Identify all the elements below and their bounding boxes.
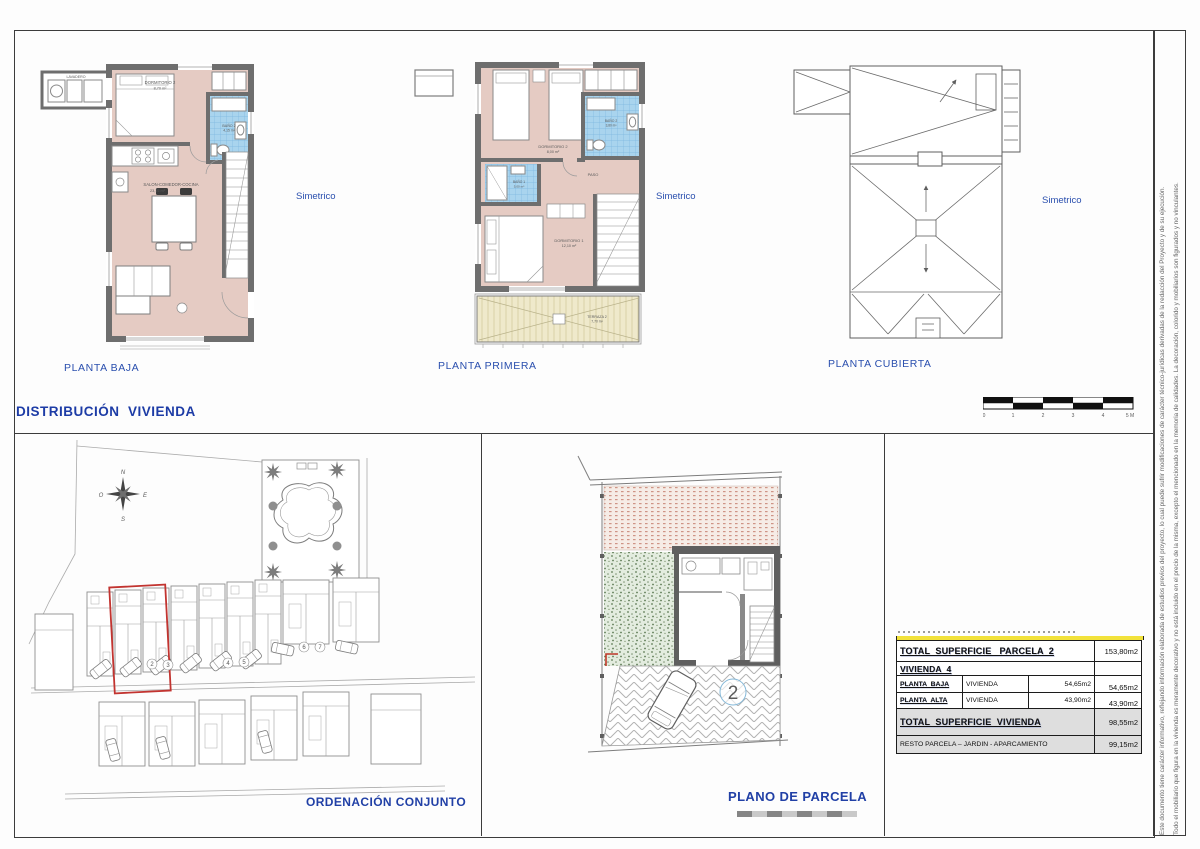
tree-icon (328, 561, 346, 579)
planta-cubierta-label: PLANTA CUBIERTA (828, 358, 932, 370)
compass-n: N (121, 470, 126, 476)
bano2-label: BAÑO 2 (222, 123, 235, 128)
bano2-label: BAÑO 2 (605, 118, 618, 123)
compass-rose: N S E O (99, 470, 148, 523)
bed-icon (549, 70, 583, 140)
table-row: TOTAL SUPERFICIE VIVIENDA 98,55m2 (897, 709, 1142, 736)
bed-icon (493, 70, 529, 140)
table-row: PLANTA BAJA VIVIENDA 54,65m2 54,65m2 (897, 676, 1142, 693)
simetrico-label-1: Simetrico (296, 191, 336, 202)
planta-baja-row-total: 54,65m2 (1095, 676, 1142, 693)
paso-label: PASO (588, 172, 599, 177)
terraza-label: TERRAZA 2 (587, 315, 607, 319)
drawing-sheet: LAVADERO BAÑO 2 4,15 m² (0, 0, 1200, 849)
annex-roof (415, 70, 453, 96)
dormitorio2-area: 8,00 m² (547, 150, 560, 154)
dormitorio2-area: 8,70 m² (154, 87, 168, 91)
compass-o: O (99, 493, 104, 499)
bed-icon (485, 216, 543, 282)
scale-tick-3: 3 (1072, 413, 1075, 419)
disclaimer-line-1: Este documento tiene carácter informativ… (1156, 31, 1170, 835)
floor-plan-planta-primera: DORMITORIO 2 8,00 m² BAÑO 2 3,80 m² (413, 56, 648, 352)
terraza: TERRAZA 2 7,70 m² (475, 294, 641, 348)
planta-alta-row-total: 43,90m2 (1095, 693, 1142, 709)
resto-parcela-label: RESTO PARCELA – JARDIN - APARCAMIENTO (897, 736, 1095, 754)
disclaimer-line-2: Todo el mobiliario que figura en la vivi… (1170, 31, 1184, 835)
planta-baja-label: PLANTA BAJA (64, 362, 139, 374)
stairs (222, 152, 248, 278)
dining-table-icon (152, 196, 196, 242)
bush-icon (333, 542, 342, 551)
table-row: PLANTA ALTA VIVIENDA 43,90m2 43,90m2 (897, 693, 1142, 709)
tree-icon (328, 461, 346, 479)
bathtub-icon (212, 98, 246, 111)
total-parcela-label: TOTAL SUPERFICIE PARCELA 2 (897, 641, 1095, 662)
bush-icon (333, 502, 342, 511)
salon-label: SALON-COMEDOR-COCINA (143, 182, 198, 187)
chair-icon (156, 243, 168, 250)
tree-icon (264, 463, 282, 481)
compass-s: S (121, 517, 125, 523)
simetrico-label-3: Simetrico (1042, 195, 1082, 206)
surface-table: TOTAL SUPERFICIE PARCELA 2 153,80m2 VIVI… (896, 640, 1142, 754)
planta-primera-label: PLANTA PRIMERA (438, 360, 537, 372)
bano2-area: 4,15 m² (223, 129, 235, 133)
sink-icon (511, 166, 525, 174)
parcel-number-circle: 2 (720, 679, 746, 705)
vivienda-label: VIVIENDA 4 (897, 662, 1095, 676)
sheet-title: DISTRIBUCIÓN VIVIENDA (16, 404, 196, 419)
scale-tick-0: 0 (983, 413, 986, 419)
wardrobe-icon (212, 72, 246, 90)
bano1-area: 5,00 m² (514, 184, 525, 188)
bano1-label: BAÑO 1 (513, 179, 525, 184)
upper-house-row (35, 578, 379, 690)
wardrobe-icon (547, 204, 585, 218)
compass-e: E (143, 493, 148, 499)
site-plan-ordenacion: N S E O 2 3 4 5 6 (15, 434, 481, 834)
parcel-plan: 2 (482, 434, 884, 834)
planta-baja-row-value: 54,65m2 (1029, 676, 1095, 693)
stairs (750, 606, 774, 662)
bush-icon (269, 542, 278, 551)
resto-parcela-value: 99,15m2 (1095, 736, 1142, 754)
total-vivienda-label: TOTAL SUPERFICIE VIVIENDA (897, 709, 1095, 736)
parcel-number: 2 (728, 683, 739, 704)
chair-icon (180, 188, 192, 195)
table-fine-print-line (898, 629, 1078, 636)
pool-garden (262, 460, 359, 582)
salon-area: 23,15 m² (150, 189, 166, 193)
scale-tick-5: 5 M (1126, 413, 1134, 419)
parcela-label: PLANO DE PARCELA (728, 789, 867, 804)
house-interior (679, 554, 774, 662)
scale-tick-4: 4 (1102, 413, 1105, 419)
lavadero-annex: LAVADERO (42, 72, 108, 108)
roof-plan-planta-cubierta (790, 60, 1040, 345)
lavadero-label: LAVADERO (66, 75, 85, 79)
terraza-area: 7,70 m² (591, 320, 603, 324)
total-vivienda-value: 98,55m2 (1095, 709, 1142, 736)
disclaimer-strip: Este documento tiene carácter informativ… (1153, 30, 1186, 836)
planta-alta-row-mid: VIVIENDA (963, 693, 1029, 709)
bathroom-2: BAÑO 2 3,80 m² (581, 70, 645, 160)
bathtub-icon (587, 98, 615, 110)
table-row: TOTAL SUPERFICIE PARCELA 2 153,80m2 (897, 641, 1142, 662)
dormitorio1-label: DORMITORIO 1 (554, 238, 584, 243)
scale-bar: 0 1 2 3 4 5 M (983, 397, 1139, 422)
planta-baja-row-label: PLANTA BAJA (897, 676, 963, 693)
total-parcela-value: 153,80m2 (1095, 641, 1142, 662)
inner-wall (740, 594, 745, 660)
surface-table-block: TOTAL SUPERFICIE PARCELA 2 153,80m2 VIVI… (896, 629, 1144, 754)
dormitorio2-label: DORMITORIO 2 (538, 144, 568, 149)
floor-plan-planta-baja: LAVADERO BAÑO 2 4,15 m² (40, 56, 262, 354)
scale-tick-1: 1 (1012, 413, 1015, 419)
bush-icon (269, 502, 278, 511)
porch-lines (120, 346, 210, 349)
stairs (593, 194, 639, 286)
panel-divider-vertical-2 (884, 433, 885, 836)
planta-alta-row-value: 43,90m2 (1029, 693, 1095, 709)
table-row: VIVIENDA 4 (897, 662, 1142, 676)
dormitorio2-label: DORMITORIO 2 (145, 80, 176, 85)
chair-icon (180, 243, 192, 250)
parcela-scale-bar (737, 811, 857, 817)
ordenacion-label: ORDENACIÓN CONJUNTO (306, 795, 466, 809)
sofa-icon (116, 266, 170, 296)
dormitorio1-area: 12,10 m² (562, 244, 577, 248)
table-row: RESTO PARCELA – JARDIN - APARCAMIENTO 99… (897, 736, 1142, 754)
patio-area (604, 486, 778, 550)
annex-roof (794, 70, 852, 114)
garden-area (604, 552, 676, 666)
simetrico-label-2: Simetrico (656, 191, 696, 202)
bano2-area: 3,80 m² (606, 123, 617, 127)
toilet-icon (593, 140, 605, 150)
tree-icon (264, 563, 282, 581)
scale-tick-2: 2 (1042, 413, 1045, 419)
planta-baja-row-mid: VIVIENDA (963, 676, 1029, 693)
lower-house-row (99, 692, 421, 766)
planta-alta-row-label: PLANTA ALTA (897, 693, 963, 709)
